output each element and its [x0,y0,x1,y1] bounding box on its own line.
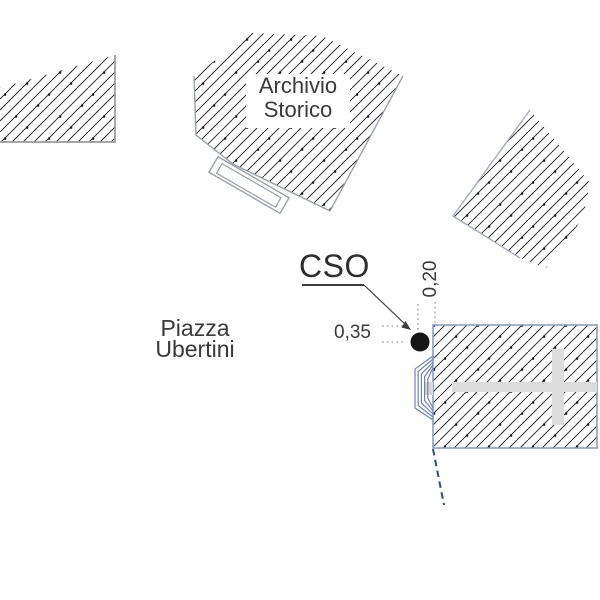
cross-marking-horizontal [452,382,597,392]
archivio-line2: Storico [264,97,332,122]
archivio-line1: Archivio [259,73,337,98]
cross-marking-vertical [552,349,564,425]
utility-dashed-line [433,449,444,505]
square-label-piazza-ubertini: Piazza Ubertini [130,318,260,360]
building-right [425,325,597,448]
cso-marker-dot [411,333,430,352]
cso-label: CSO [299,250,369,282]
dimension-label-035: 0,35 [334,322,378,344]
site-plan-canvas: Archivio Storico Piazza Ubertini CSO 0,3… [0,0,600,600]
building-label-archivio-storico: Archivio Storico [246,74,350,128]
building-top-right [453,110,590,268]
piazza-line2: Ubertini [155,336,234,362]
wall-opening-mark [425,382,433,395]
building-top-left-hatch [0,55,115,142]
building-top-left [0,55,115,142]
cso-leader-line [364,285,407,326]
dimension-label-020: 0,20 [420,257,438,301]
building-top-right-hatch [453,110,590,268]
